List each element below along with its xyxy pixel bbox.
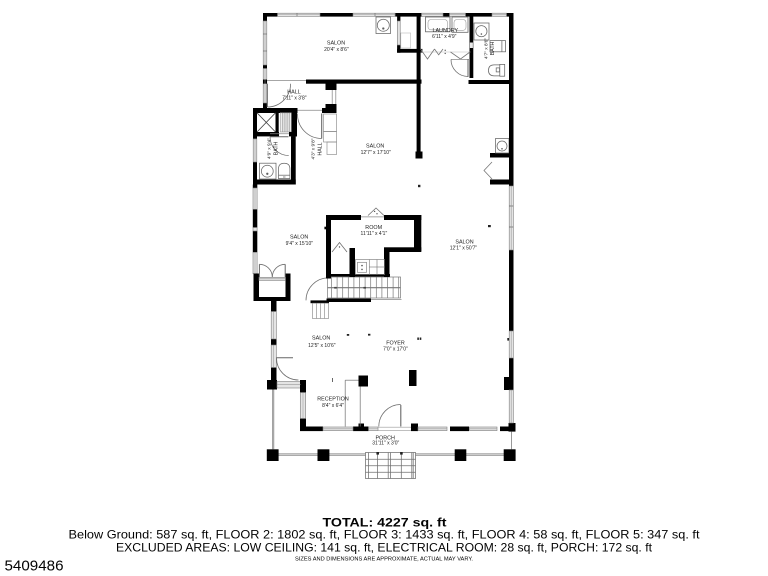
svg-text:11'11" x 4'1": 11'11" x 4'1" xyxy=(361,231,388,237)
svg-text:8'4" x 6'4": 8'4" x 6'4" xyxy=(322,403,344,409)
svg-text:HALL: HALL xyxy=(287,90,301,96)
svg-text:7'0" x 17'0": 7'0" x 17'0" xyxy=(383,347,408,353)
svg-text:12'7" x 17'10": 12'7" x 17'10" xyxy=(361,150,391,156)
svg-text:Below Ground: 587 sq. ft, FLOO: Below Ground: 587 sq. ft, FLOOR 2: 1802 … xyxy=(69,528,701,542)
svg-text:BATH: BATH xyxy=(273,142,279,156)
svg-text:SALON: SALON xyxy=(366,143,384,149)
svg-text:SALON: SALON xyxy=(312,336,330,342)
svg-text:SALON: SALON xyxy=(327,41,345,47)
svg-text:SALON: SALON xyxy=(290,235,308,241)
svg-text:4'9" x 9'4": 4'9" x 9'4" xyxy=(267,138,273,159)
svg-text:HALL: HALL xyxy=(317,142,323,155)
svg-text:4'7" x 8'6": 4'7" x 8'6" xyxy=(484,38,490,59)
svg-text:5409486: 5409486 xyxy=(5,557,64,574)
svg-text:SIZES AND DIMENSIONS ARE APPRO: SIZES AND DIMENSIONS ARE APPROXIMATE, AC… xyxy=(295,556,473,562)
svg-text:4'3" x 9'8": 4'3" x 9'8" xyxy=(311,138,317,159)
svg-text:12'1" x 50'7": 12'1" x 50'7" xyxy=(450,245,478,251)
svg-text:31'11" x 3'0": 31'11" x 3'0" xyxy=(372,441,399,447)
svg-text:12'5" x 10'6": 12'5" x 10'6" xyxy=(308,343,336,349)
svg-text:6'11" x 4'9": 6'11" x 4'9" xyxy=(432,34,456,40)
svg-text:RECEPTION: RECEPTION xyxy=(317,397,349,403)
svg-text:7'11" x 3'8": 7'11" x 3'8" xyxy=(282,96,306,102)
svg-text:BATH: BATH xyxy=(490,42,496,56)
svg-text:FOYER: FOYER xyxy=(386,340,405,346)
svg-text:20'4" x 8'6": 20'4" x 8'6" xyxy=(324,47,349,53)
svg-text:EXCLUDED AREAS: LOW CEILING: 1: EXCLUDED AREAS: LOW CEILING: 141 sq. ft,… xyxy=(116,541,653,555)
svg-text:9'4" x 15'10": 9'4" x 15'10" xyxy=(286,241,314,247)
